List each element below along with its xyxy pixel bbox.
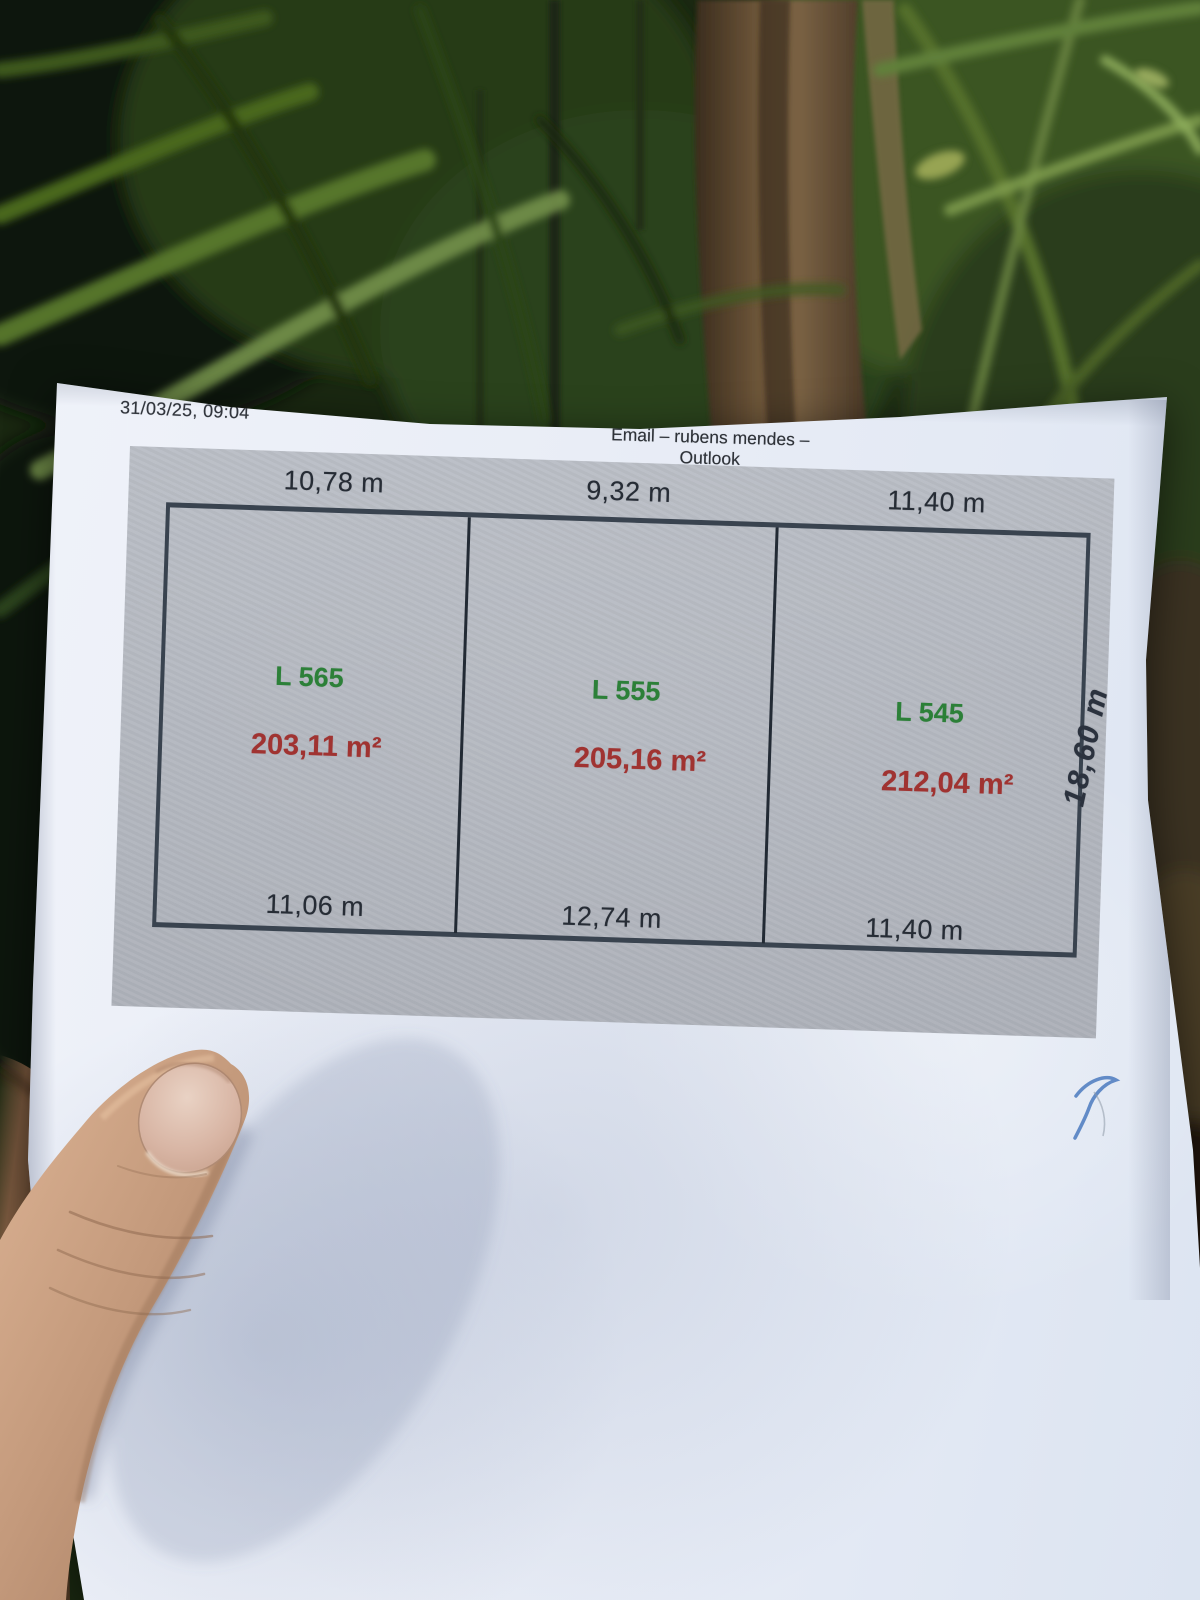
hand-holding-paper <box>0 0 1200 1600</box>
photo-scene: 31/03/25, 09:04 Email – rubens mendes – … <box>0 0 1200 1600</box>
